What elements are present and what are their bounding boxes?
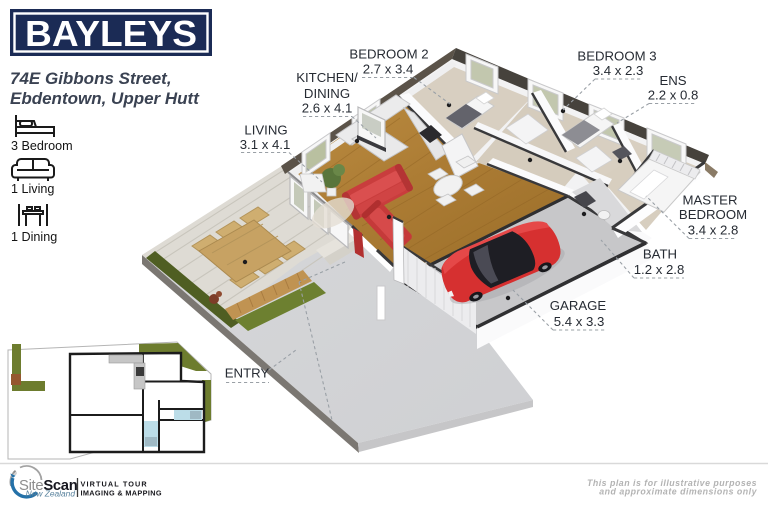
svg-text:2.2 x 0.8: 2.2 x 0.8 [648,88,699,103]
svg-text:2.6 x 4.1: 2.6 x 4.1 [302,101,353,116]
svg-text:74E Gibbons Street,: 74E Gibbons Street, [10,69,172,88]
svg-text:2.7 x 3.4: 2.7 x 3.4 [363,62,414,77]
svg-text:1 Living: 1 Living [11,182,54,196]
svg-text:IMAGING & MAPPING: IMAGING & MAPPING [81,489,162,498]
svg-text:3 Bedroom: 3 Bedroom [11,139,73,153]
svg-text:BEDROOM 2: BEDROOM 2 [349,47,428,62]
svg-text:Ebdentown, Upper Hutt: Ebdentown, Upper Hutt [10,89,200,108]
svg-text:GARAGE: GARAGE [550,298,607,313]
svg-text:3.1 x 4.1: 3.1 x 4.1 [240,137,291,152]
svg-text:KITCHEN/: KITCHEN/ [296,70,358,85]
svg-text:LIVING: LIVING [244,123,287,138]
svg-text:BATH: BATH [643,247,677,262]
svg-text:ENS: ENS [659,73,686,88]
svg-text:New Zealand: New Zealand [26,489,76,499]
svg-text:3.4 x 2.8: 3.4 x 2.8 [688,223,739,238]
svg-text:5.4 x 3.3: 5.4 x 3.3 [554,314,605,329]
svg-text:VIRTUAL TOUR: VIRTUAL TOUR [81,480,148,489]
svg-text:®: ® [13,470,17,477]
svg-text:BEDROOM 3: BEDROOM 3 [577,49,656,64]
svg-text:MASTER: MASTER [683,193,738,208]
svg-text:1.2 x 2.8: 1.2 x 2.8 [634,262,685,277]
svg-text:1 Dining: 1 Dining [11,230,57,244]
svg-text:ENTRY: ENTRY [225,366,270,381]
svg-text:and approximate dimensions onl: and approximate dimensions only [599,487,757,497]
svg-text:BEDROOM: BEDROOM [679,207,747,222]
svg-text:BAYLEYS: BAYLEYS [25,13,197,54]
svg-text:3.4 x 2.3: 3.4 x 2.3 [593,63,644,78]
svg-text:DINING: DINING [304,86,350,101]
